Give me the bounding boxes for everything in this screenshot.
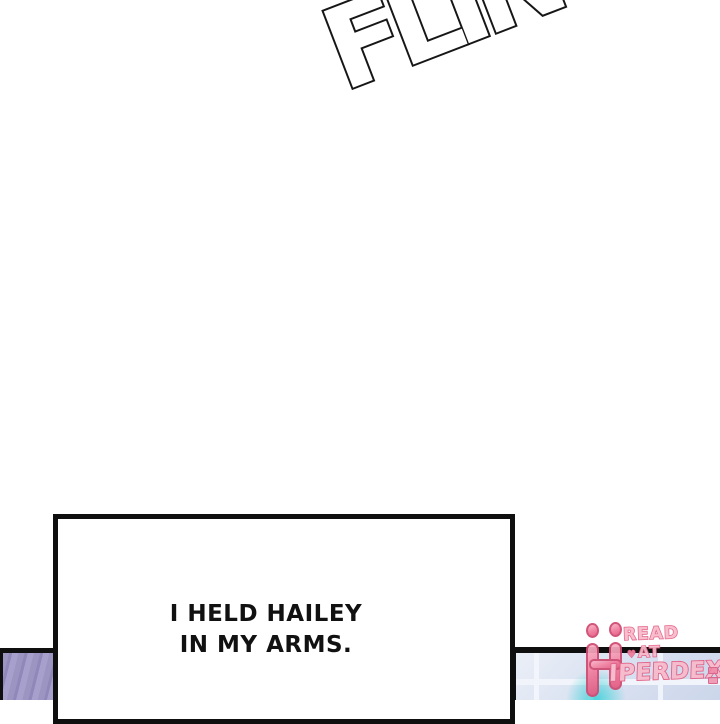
narration-line-2: IN MY ARMS.: [58, 630, 474, 661]
heart-icon: ♥: [627, 649, 637, 660]
panel-corner-purple: [0, 648, 58, 700]
hiperdex-watermark: READ ♥AT IPERDEX: [581, 614, 720, 700]
logo-h-dot-right: [609, 622, 622, 637]
narration-box: I HELD HAILEY IN MY ARMS.: [53, 514, 515, 724]
narration-line-1: I HELD HAILEY: [58, 599, 474, 630]
logo-suffix-glyphs: [708, 667, 719, 685]
comic-page: { "sfx": { "text": "FLINCH" }, "caption"…: [0, 0, 720, 700]
logo-suffix-glyph-bottom: [708, 677, 718, 684]
logo-read-label: READ: [623, 623, 680, 645]
narration-text: I HELD HAILEY IN MY ARMS.: [58, 599, 510, 661]
sfx-flinch-text: FLINCH: [310, 0, 712, 108]
logo-suffix-glyph-top: [708, 667, 718, 674]
logo-iperdex-label: IPERDEX: [609, 657, 720, 687]
logo-h-dot-left: [586, 623, 599, 638]
logo-h-bar-left: [586, 643, 599, 697]
